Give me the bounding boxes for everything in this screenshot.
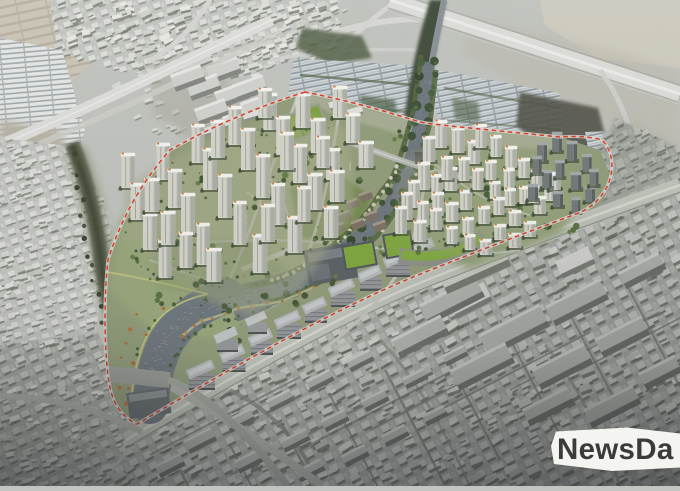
svg-text:NewsDa: NewsDa: [557, 433, 674, 466]
